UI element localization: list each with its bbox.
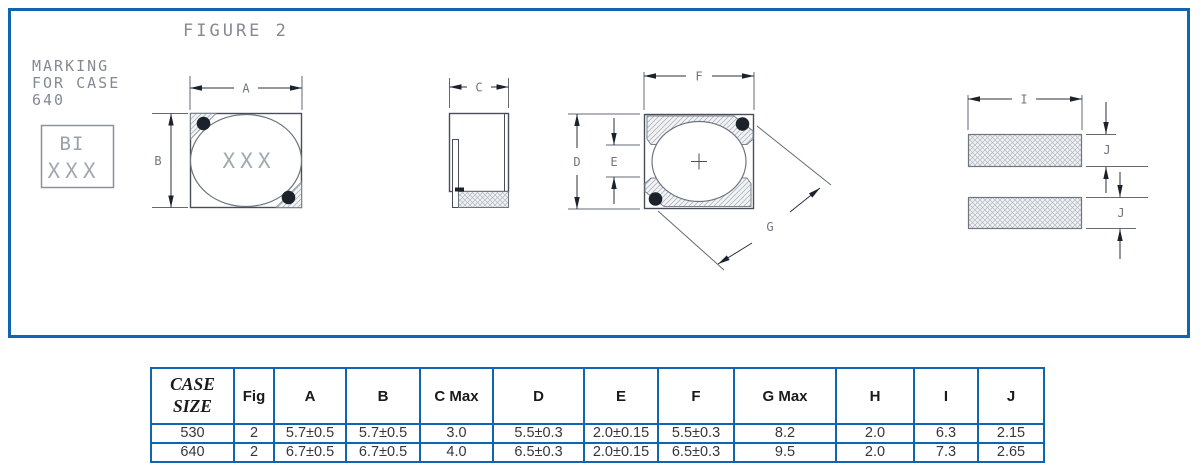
dim-label-i: I: [1020, 93, 1027, 107]
dim-label-a: A: [242, 82, 250, 96]
cell-b: 5.7±0.5: [346, 424, 420, 443]
cell-i: 6.3: [914, 424, 978, 443]
marking-box-line2: XXX: [48, 159, 101, 183]
cell-c-max: 4.0: [420, 443, 493, 462]
col-header-e: E: [584, 368, 658, 424]
col-header-g-max: G Max: [734, 368, 836, 424]
cell-d: 6.5±0.3: [493, 443, 584, 462]
col-header-a: A: [274, 368, 346, 424]
cell-j: 2.15: [978, 424, 1044, 443]
cell-h: 2.0: [836, 424, 914, 443]
cell-fig: 2: [234, 443, 274, 462]
cell-g-max: 9.5: [734, 443, 836, 462]
dim-label-d: D: [573, 155, 580, 169]
col-header-d: D: [493, 368, 584, 424]
cell-f: 5.5±0.3: [658, 424, 734, 443]
cell-case-size: 640: [151, 443, 234, 462]
cell-d: 5.5±0.3: [493, 424, 584, 443]
col-header-j: J: [978, 368, 1044, 424]
dim-label-b: B: [154, 154, 161, 168]
cell-b: 6.7±0.5: [346, 443, 420, 462]
cell-e: 2.0±0.15: [584, 443, 658, 462]
body-marking-text: XXX: [223, 149, 276, 173]
terminal-dot-bottom-right: [282, 191, 296, 205]
col-header-case-size: CASE SIZE: [151, 368, 234, 424]
cell-i: 7.3: [914, 443, 978, 462]
col-header-f: F: [658, 368, 734, 424]
figure-border: [10, 10, 1189, 337]
table-row-530: 530 2 5.7±0.5 5.7±0.5 3.0 5.5±0.3 2.0±0.…: [151, 424, 1044, 443]
cell-a: 6.7±0.5: [274, 443, 346, 462]
dim-label-g: G: [766, 220, 773, 234]
datasheet-page: { "figure": { "title": "FIGURE 2", "mark…: [0, 0, 1200, 473]
cell-fig: 2: [234, 424, 274, 443]
cell-e: 2.0±0.15: [584, 424, 658, 443]
col-header-c-max: C Max: [420, 368, 493, 424]
col-header-fig: Fig: [234, 368, 274, 424]
dim-label-j-top: J: [1103, 143, 1110, 157]
col-header-h: H: [836, 368, 914, 424]
table-header-row: CASE SIZE Fig A B C Max D E F G Max H I …: [151, 368, 1044, 424]
terminal-dot-bottom-left: [649, 192, 663, 206]
dim-label-j-bottom: J: [1117, 206, 1124, 220]
marking-note-line1: MARKING: [32, 57, 109, 75]
cell-g-max: 8.2: [734, 424, 836, 443]
dimensions-table: CASE SIZE Fig A B C Max D E F G Max H I …: [150, 367, 1045, 463]
cell-f: 6.5±0.3: [658, 443, 734, 462]
land-pad-bottom: [969, 198, 1082, 229]
land-pad-top: [969, 135, 1082, 167]
cell-case-size: 530: [151, 424, 234, 443]
figure-title: FIGURE 2: [183, 21, 289, 41]
terminal-dot-top-right: [736, 117, 750, 131]
cell-h: 2.0: [836, 443, 914, 462]
marking-note-line2: FOR CASE: [32, 74, 120, 92]
cell-j: 2.65: [978, 443, 1044, 462]
cell-a: 5.7±0.5: [274, 424, 346, 443]
dim-label-f: F: [695, 70, 702, 84]
terminal-dot-top-left: [197, 117, 211, 131]
col-header-b: B: [346, 368, 420, 424]
table-row-640: 640 2 6.7±0.5 6.7±0.5 4.0 6.5±0.3 2.0±0.…: [151, 443, 1044, 462]
figure-2-drawing: FIGURE 2 MARKING FOR CASE 640 BI XXX A B…: [0, 0, 1200, 346]
dim-label-c: C: [475, 81, 482, 95]
dim-label-e: E: [610, 155, 617, 169]
side-view-base: [459, 192, 509, 208]
col-header-i: I: [914, 368, 978, 424]
marking-box: BI XXX: [42, 126, 114, 188]
cell-c-max: 3.0: [420, 424, 493, 443]
marking-box-line1: BI: [60, 133, 85, 155]
side-view-terminal: [453, 140, 459, 208]
marking-note-line3: 640: [32, 91, 65, 109]
